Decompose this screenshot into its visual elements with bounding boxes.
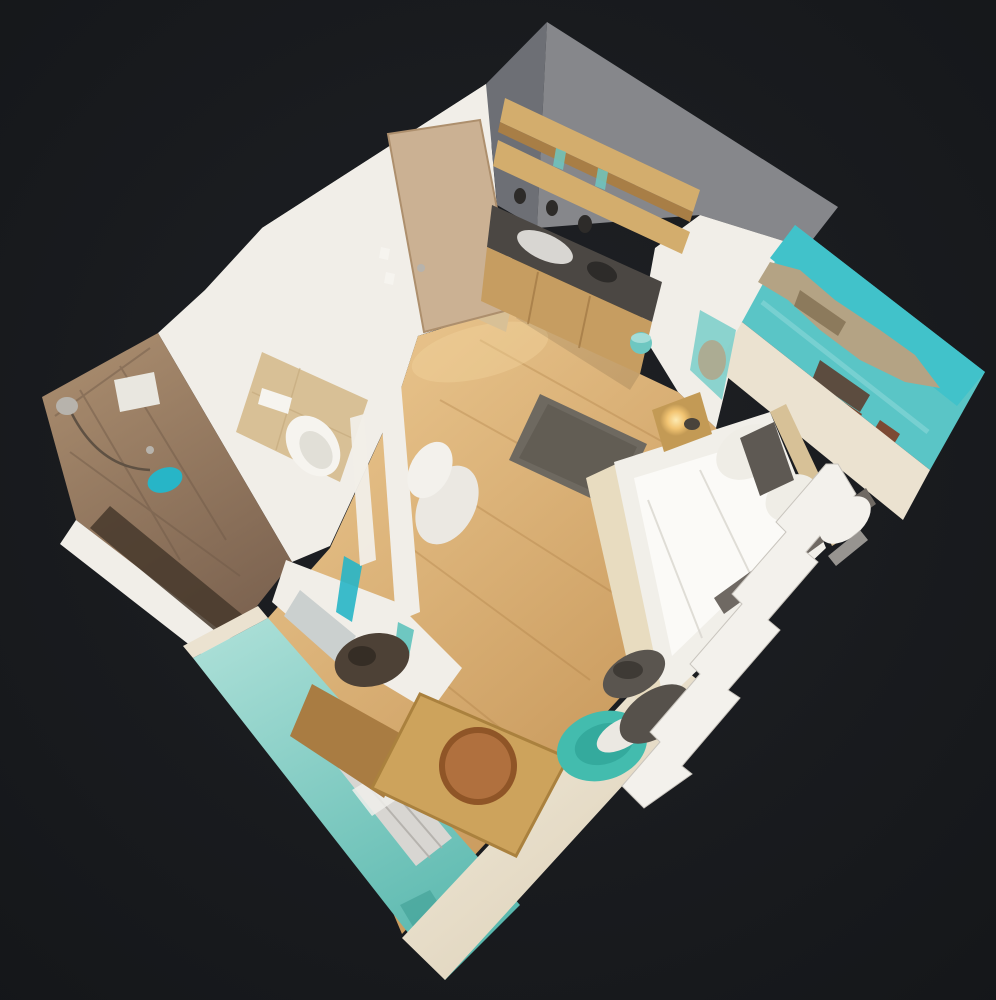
bin-lid <box>631 333 651 343</box>
grey-bag-shadow <box>613 661 643 679</box>
shelf-bottle <box>514 188 526 204</box>
shelf-bottle-2 <box>546 200 558 216</box>
door-handle <box>417 264 425 272</box>
shower-head <box>56 397 78 415</box>
mural-interior-rock-patch <box>698 340 726 380</box>
round-terracotta-tray <box>445 733 511 799</box>
shelf-bottle-3 <box>578 215 592 233</box>
shower-mixer <box>146 446 154 454</box>
light-switch <box>379 247 390 260</box>
nightstand-decor <box>684 418 700 430</box>
light-switch-2 <box>384 272 395 285</box>
dark-clothes-core <box>348 646 376 666</box>
dollhouse-viewport[interactable] <box>0 0 996 1000</box>
apartment-3d-model <box>0 0 996 1000</box>
